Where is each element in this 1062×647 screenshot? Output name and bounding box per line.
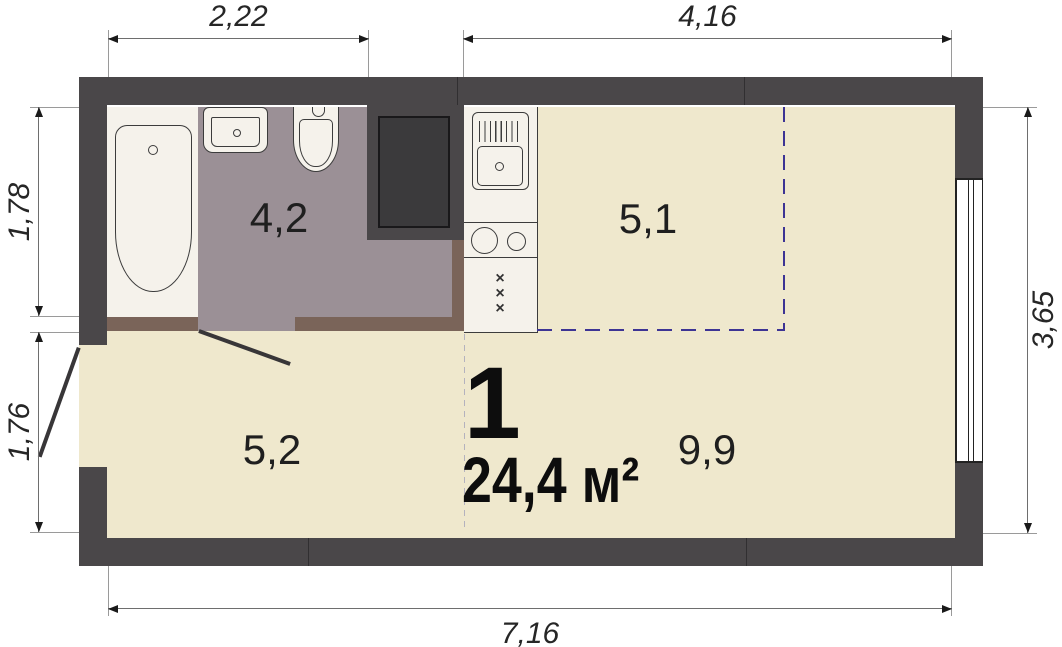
- dimension-label-top-left: 2,22: [108, 1, 369, 33]
- kitchen-zone-dash-vertical: [783, 107, 785, 331]
- wall-top: [79, 77, 983, 105]
- stove-burner-large-icon: [471, 227, 498, 254]
- entry-door-leaf-icon: [38, 347, 80, 457]
- wall-bottom: [79, 538, 983, 566]
- dimension-label-top-right: 4,16: [463, 1, 952, 33]
- wall-left-upper: [79, 77, 107, 345]
- dimension-arrow: [35, 522, 43, 532]
- stove-burner-small-icon: [507, 232, 526, 251]
- dimension-line: [38, 332, 39, 532]
- kitchen-sink-drain-icon: [495, 162, 504, 171]
- floor-plan: × × × 2,22 4,16 7,16 1,78 1,76 3,: [0, 0, 1062, 647]
- shaft-icon: [378, 116, 450, 228]
- wall-seam: [744, 77, 745, 105]
- dimension-arrow: [942, 35, 952, 43]
- dimension-arrow: [359, 35, 369, 43]
- room-area-kitchen: 5,1: [598, 197, 698, 241]
- dimension-line: [38, 107, 39, 316]
- dimension-arrow: [1024, 523, 1032, 533]
- toilet-bowl-icon: [299, 119, 333, 167]
- wall-seam: [746, 538, 747, 566]
- dimension-arrow: [463, 35, 473, 43]
- dimension-arrow: [108, 35, 118, 43]
- wall-seam: [308, 538, 309, 566]
- appliance-unit-icon: × × ×: [486, 272, 514, 316]
- extension-line: [30, 532, 79, 533]
- wall-seam: [457, 77, 458, 105]
- unit-number: 1: [464, 352, 521, 454]
- bathroom-partition-right: [295, 317, 452, 331]
- dimension-label-right: 3,65: [1028, 260, 1060, 380]
- bathroom-partition-vertical: [452, 240, 464, 331]
- dimension-label-bottom: 7,16: [108, 618, 952, 647]
- wall-right-upper: [955, 77, 983, 178]
- dimension-arrow: [35, 306, 43, 316]
- appliance-mark: ×: [495, 272, 504, 286]
- dimension-arrow: [108, 605, 118, 613]
- room-area-living: 9,9: [657, 428, 757, 472]
- window-frame-line: [982, 178, 984, 463]
- appliance-mark: ×: [495, 302, 504, 316]
- dimension-line: [463, 38, 952, 39]
- bathroom-floor-lower: [198, 240, 452, 317]
- window-glass-line: [973, 178, 974, 463]
- extension-line: [30, 316, 79, 317]
- room-area-bathroom: 4,2: [229, 196, 329, 240]
- dimension-arrow: [942, 605, 952, 613]
- extension-line: [983, 533, 1037, 534]
- bathroom-partition-left: [107, 317, 198, 331]
- dimension-arrow: [35, 332, 43, 342]
- bathtub-drain-icon: [148, 145, 158, 155]
- dimension-line: [108, 38, 369, 39]
- total-area-label: 24,4 м²: [462, 448, 639, 512]
- dimension-label-left-upper: 1,78: [4, 152, 36, 272]
- dimension-arrow: [1024, 107, 1032, 117]
- kitchen-zone-dash-horizontal: [537, 329, 784, 331]
- appliance-mark: ×: [495, 287, 504, 301]
- dimension-arrow: [35, 107, 43, 117]
- window-glass-line: [968, 178, 969, 463]
- drainboard-icon: [479, 121, 522, 142]
- dimension-label-left-lower: 1,76: [4, 372, 36, 492]
- room-area-hallway: 5,2: [222, 428, 322, 472]
- washbasin-drain-icon: [233, 129, 241, 137]
- dimension-line: [108, 608, 952, 609]
- bathroom-door-gap-floor: [198, 317, 295, 331]
- entry-doorway-floor: [79, 345, 107, 467]
- wall-right-lower: [955, 463, 983, 566]
- window-frame-line: [955, 178, 957, 463]
